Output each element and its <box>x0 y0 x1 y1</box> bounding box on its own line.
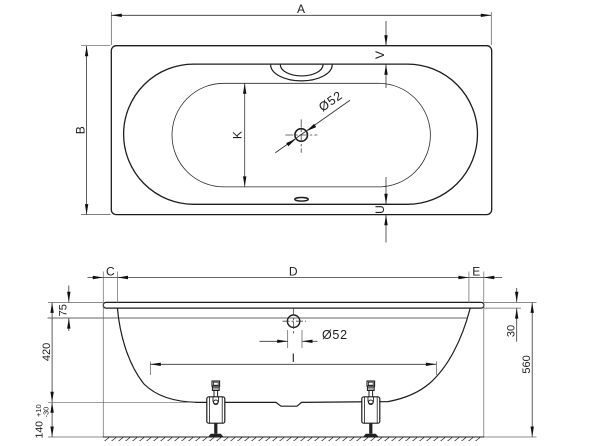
svg-text:K: K <box>231 131 245 139</box>
svg-text:Ø52: Ø52 <box>322 328 348 342</box>
svg-text:-30: -30 <box>42 407 51 418</box>
svg-text:140: 140 <box>33 421 45 439</box>
svg-text:I: I <box>292 351 295 365</box>
svg-text:V: V <box>373 51 387 59</box>
svg-text:U: U <box>373 205 387 214</box>
svg-text:B: B <box>73 126 87 134</box>
svg-text:A: A <box>297 2 305 16</box>
svg-text:C: C <box>106 264 115 278</box>
svg-text:E: E <box>472 264 480 278</box>
svg-text:30: 30 <box>506 325 518 337</box>
svg-text:560: 560 <box>521 355 533 373</box>
svg-text:75: 75 <box>58 304 70 316</box>
svg-text:D: D <box>289 264 298 278</box>
svg-text:420: 420 <box>41 343 53 361</box>
